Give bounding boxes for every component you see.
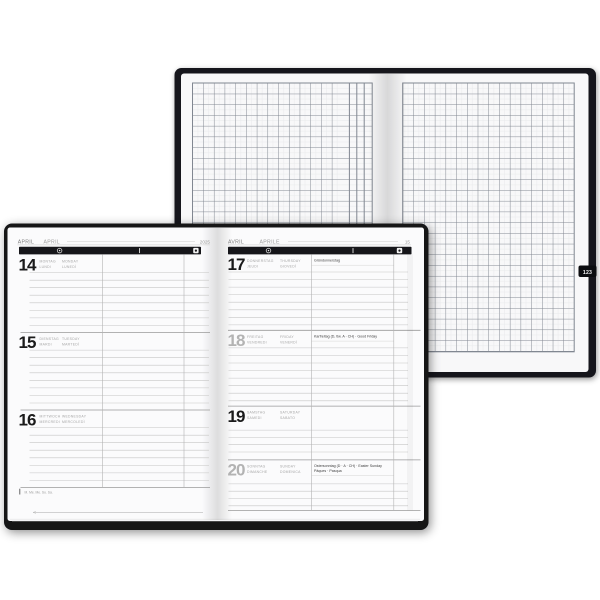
- svg-text:THURSDAY: THURSDAY: [280, 259, 301, 263]
- svg-text:FRIDAY: FRIDAY: [280, 335, 294, 339]
- svg-text:APRIL: APRIL: [44, 239, 61, 245]
- svg-text:LUNEDÌ: LUNEDÌ: [62, 265, 76, 269]
- svg-text:DOMENICA: DOMENICA: [280, 470, 301, 474]
- svg-text:DIMANCHE: DIMANCHE: [247, 470, 268, 474]
- svg-text:JEUDI: JEUDI: [247, 265, 258, 269]
- svg-text:AVRIL: AVRIL: [228, 239, 244, 245]
- svg-text:MONDAY: MONDAY: [62, 260, 79, 264]
- svg-text:WEDNESDAY: WEDNESDAY: [62, 415, 87, 419]
- svg-text:M. Me. Me. Su. Sa.: M. Me. Me. Su. Sa.: [25, 491, 53, 495]
- svg-text:VENDREDI: VENDREDI: [247, 340, 267, 344]
- svg-text:MERCREDI: MERCREDI: [40, 420, 60, 424]
- svg-text:APRIL: APRIL: [18, 239, 35, 245]
- svg-text:MONTAG: MONTAG: [40, 260, 56, 264]
- svg-text:20: 20: [228, 461, 245, 480]
- svg-text:Karfreitag (D, tlw. A · CH) ·: Karfreitag (D, tlw. A · CH) · Good Frida…: [314, 335, 377, 339]
- svg-text:MITTWOCH: MITTWOCH: [40, 415, 61, 419]
- svg-text:17: 17: [228, 255, 245, 274]
- svg-text:SAMSTAG: SAMSTAG: [247, 411, 265, 415]
- svg-text:14: 14: [19, 256, 37, 275]
- svg-text:SUNDAY: SUNDAY: [280, 465, 296, 469]
- svg-text:15: 15: [405, 239, 411, 244]
- svg-text:Gründonnerstag: Gründonnerstag: [314, 259, 340, 263]
- svg-text:MARTEDÌ: MARTEDÌ: [62, 343, 79, 347]
- svg-text:TUESDAY: TUESDAY: [62, 337, 80, 341]
- svg-text:Ostersonntag (D · A · CH) · Ea: Ostersonntag (D · A · CH) · Easter Sunda…: [314, 464, 382, 468]
- svg-text:Pâques · Pasqua: Pâques · Pasqua: [314, 469, 342, 473]
- svg-text:SATURDAY: SATURDAY: [280, 411, 301, 415]
- svg-text:FREITAG: FREITAG: [247, 335, 264, 339]
- svg-text:19: 19: [228, 407, 245, 426]
- svg-text:DIENSTAG: DIENSTAG: [40, 337, 60, 341]
- svg-text:VENERDÌ: VENERDÌ: [280, 340, 297, 344]
- svg-text:16: 16: [19, 411, 36, 430]
- svg-text:MARDI: MARDI: [40, 343, 52, 347]
- svg-text:GIOVEDÌ: GIOVEDÌ: [280, 265, 296, 269]
- svg-text:SONNTAG: SONNTAG: [247, 465, 266, 469]
- svg-text:123: 123: [583, 270, 592, 276]
- svg-text:APRILE: APRILE: [260, 239, 280, 245]
- svg-text:SABATO: SABATO: [280, 416, 295, 420]
- svg-text:15: 15: [19, 333, 36, 352]
- svg-text:18: 18: [228, 331, 245, 350]
- svg-text:MERCOLEDÌ: MERCOLEDÌ: [62, 420, 85, 424]
- svg-text:2025: 2025: [200, 239, 211, 244]
- svg-text:SAMEDI: SAMEDI: [247, 416, 262, 420]
- svg-text:DONNERSTAG: DONNERSTAG: [247, 259, 274, 263]
- svg-text:LUNDI: LUNDI: [40, 265, 52, 269]
